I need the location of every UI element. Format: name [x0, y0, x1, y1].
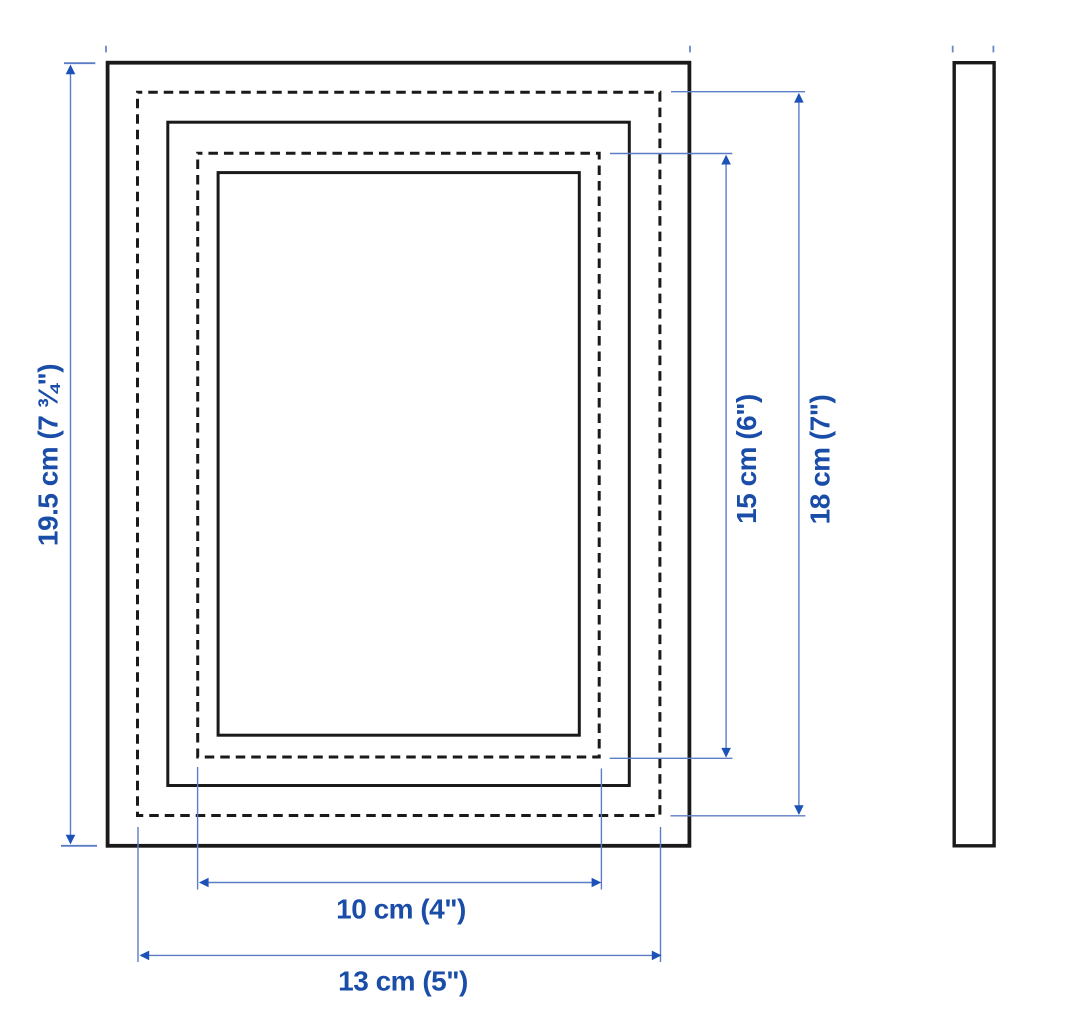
svg-text:10 cm (4"): 10 cm (4"): [336, 894, 466, 925]
svg-text:18 cm (7"): 18 cm (7"): [805, 395, 836, 525]
svg-text:15 cm (6"): 15 cm (6"): [731, 394, 762, 524]
svg-text:19.5 cm (7 ¾"): 19.5 cm (7 ¾"): [33, 364, 64, 546]
svg-text:13 cm (5"): 13 cm (5"): [338, 966, 468, 997]
